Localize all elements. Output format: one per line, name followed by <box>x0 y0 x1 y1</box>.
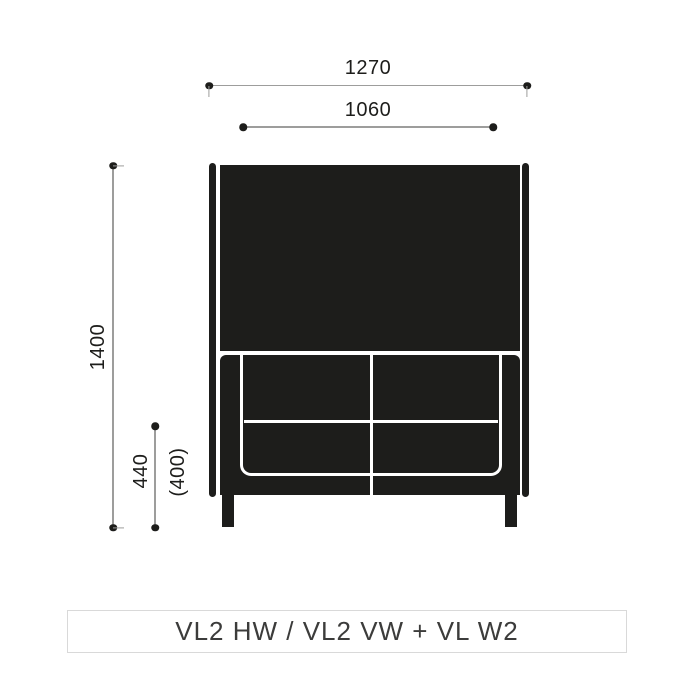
dim-line <box>154 426 155 528</box>
dim-line <box>112 165 113 528</box>
backrest-panel <box>220 165 520 351</box>
dim-label-height-total: 1400 <box>87 324 109 371</box>
dim-extension-tick <box>113 527 124 528</box>
technical-drawing-canvas: 1270 1060 1400 440 (400) VL2 H <box>0 0 700 700</box>
dim-label-seat-height-alt: (400) <box>167 447 189 496</box>
left-leg <box>222 495 234 527</box>
dim-extension-tick <box>526 86 527 97</box>
dim-line <box>243 126 493 127</box>
dim-label-seat-height: 440 <box>130 454 152 489</box>
dim-extension-tick <box>113 165 124 166</box>
dim-endpoint-dot <box>151 524 159 532</box>
dim-endpoint-dot <box>239 123 247 131</box>
dim-label-width-inner: 1060 <box>345 99 392 121</box>
dim-label-width-total: 1270 <box>345 57 392 79</box>
seat-divider-vertical <box>370 351 374 495</box>
model-caption: VL2 HW / VL2 VW + VL W2 <box>175 616 519 647</box>
dim-extension-tick <box>208 86 209 97</box>
dim-line <box>209 85 527 86</box>
dim-endpoint-dot <box>151 422 159 430</box>
dim-endpoint-dot <box>489 123 497 131</box>
right-wing-panel <box>522 163 529 497</box>
caption-bar: VL2 HW / VL2 VW + VL W2 <box>67 610 627 653</box>
right-leg <box>505 495 517 527</box>
left-wing-panel <box>209 163 216 497</box>
